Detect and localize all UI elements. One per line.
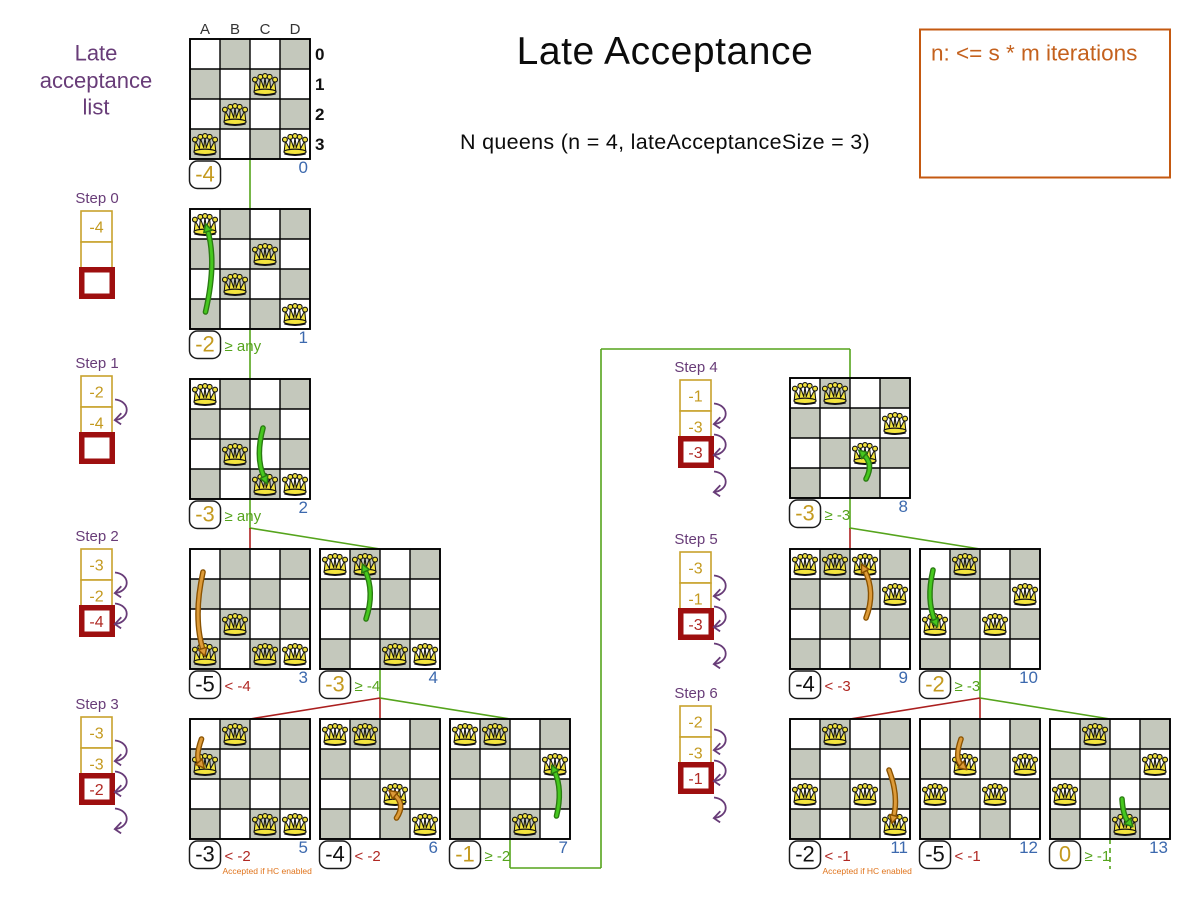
- svg-text:≥ any: ≥ any: [225, 338, 262, 355]
- svg-text:-1: -1: [688, 592, 702, 609]
- svg-text:-3: -3: [195, 842, 215, 867]
- svg-text:-4: -4: [89, 416, 103, 433]
- svg-text:3: 3: [299, 668, 308, 687]
- svg-text:2: 2: [299, 498, 308, 517]
- svg-text:8: 8: [899, 497, 908, 516]
- svg-text:< -1: < -1: [955, 848, 981, 865]
- svg-text:-3: -3: [795, 501, 815, 526]
- svg-text:-5: -5: [195, 672, 215, 697]
- svg-text:9: 9: [899, 668, 908, 687]
- svg-text:-3: -3: [688, 746, 702, 763]
- svg-text:Step 1: Step 1: [75, 355, 118, 372]
- svg-text:n: <= s * m iterations: n: <= s * m iterations: [931, 40, 1137, 65]
- svg-text:≥ -1: ≥ -1: [1085, 848, 1111, 865]
- svg-text:B: B: [230, 21, 240, 38]
- svg-text:1: 1: [299, 328, 308, 347]
- svg-text:-1: -1: [688, 771, 702, 788]
- svg-text:-2: -2: [688, 715, 702, 732]
- svg-text:-3: -3: [688, 617, 702, 634]
- svg-text:Step 5: Step 5: [674, 531, 717, 548]
- svg-text:-2: -2: [89, 782, 103, 799]
- svg-text:list: list: [83, 95, 110, 120]
- svg-text:Step 3: Step 3: [75, 696, 118, 713]
- svg-text:≥ -3: ≥ -3: [955, 678, 981, 695]
- svg-text:A: A: [200, 21, 210, 38]
- svg-text:-2: -2: [89, 385, 103, 402]
- svg-text:Step 6: Step 6: [674, 685, 717, 702]
- svg-text:-1: -1: [688, 389, 702, 406]
- svg-text:Accepted if HC enabled: Accepted if HC enabled: [223, 866, 313, 876]
- svg-text:Step 4: Step 4: [674, 359, 717, 376]
- svg-text:13: 13: [1149, 838, 1168, 857]
- svg-text:< -4: < -4: [225, 678, 251, 695]
- svg-text:-3: -3: [89, 726, 103, 743]
- svg-text:≥ any: ≥ any: [225, 508, 262, 525]
- svg-text:0: 0: [315, 45, 324, 64]
- svg-text:-3: -3: [195, 502, 215, 527]
- svg-text:-2: -2: [195, 332, 215, 357]
- svg-text:10: 10: [1019, 668, 1038, 687]
- svg-text:-3: -3: [688, 445, 702, 462]
- svg-text:-4: -4: [795, 672, 815, 697]
- svg-text:5: 5: [299, 838, 308, 857]
- svg-text:acceptance: acceptance: [40, 68, 153, 93]
- svg-text:-3: -3: [89, 558, 103, 575]
- svg-text:-3: -3: [688, 420, 702, 437]
- svg-text:0: 0: [1059, 842, 1071, 867]
- svg-text:C: C: [260, 21, 271, 38]
- svg-text:Late Acceptance: Late Acceptance: [517, 30, 814, 73]
- svg-text:1: 1: [315, 75, 324, 94]
- svg-text:Accepted if HC enabled: Accepted if HC enabled: [823, 866, 913, 876]
- svg-text:2: 2: [315, 105, 324, 124]
- svg-text:≥ -4: ≥ -4: [355, 678, 381, 695]
- svg-text:-3: -3: [688, 561, 702, 578]
- svg-text:≥ -2: ≥ -2: [485, 848, 511, 865]
- svg-text:-5: -5: [925, 842, 945, 867]
- svg-text:-4: -4: [325, 842, 345, 867]
- svg-text:4: 4: [429, 668, 438, 687]
- svg-text:< -1: < -1: [825, 848, 851, 865]
- svg-text:≥ -3: ≥ -3: [825, 507, 851, 524]
- svg-text:-4: -4: [89, 220, 103, 237]
- svg-text:7: 7: [559, 838, 568, 857]
- svg-text:N queens (n = 4, lateAcceptanc: N queens (n = 4, lateAcceptanceSize = 3): [460, 130, 870, 154]
- svg-text:D: D: [290, 21, 301, 38]
- svg-text:6: 6: [429, 838, 438, 857]
- svg-text:11: 11: [890, 838, 908, 857]
- svg-text:< -2: < -2: [225, 848, 251, 865]
- svg-text:-3: -3: [89, 757, 103, 774]
- svg-text:-2: -2: [795, 842, 815, 867]
- svg-text:-1: -1: [455, 842, 475, 867]
- svg-text:Step 0: Step 0: [75, 190, 118, 207]
- svg-text:-2: -2: [89, 589, 103, 606]
- svg-text:-3: -3: [325, 672, 345, 697]
- svg-text:-4: -4: [89, 614, 103, 631]
- svg-text:-2: -2: [925, 672, 945, 697]
- svg-text:0: 0: [299, 158, 308, 177]
- svg-text:-4: -4: [195, 162, 215, 187]
- svg-text:12: 12: [1019, 838, 1038, 857]
- svg-text:< -3: < -3: [825, 678, 851, 695]
- svg-text:3: 3: [315, 135, 324, 154]
- svg-text:< -2: < -2: [355, 848, 381, 865]
- svg-text:Late: Late: [75, 41, 118, 66]
- svg-text:Step 2: Step 2: [75, 528, 118, 545]
